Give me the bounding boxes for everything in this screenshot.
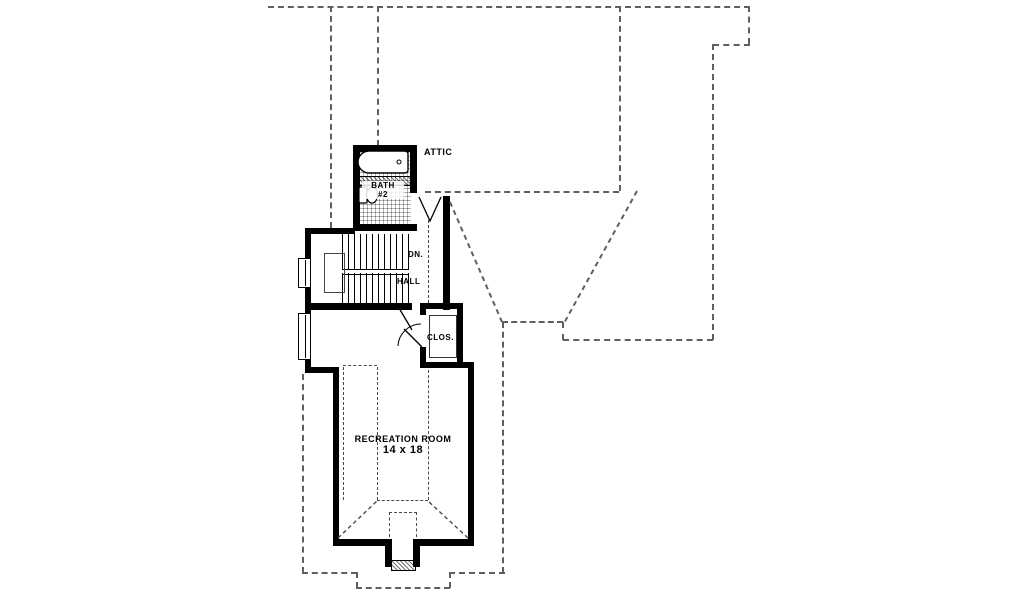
roof-outline-left-lower	[302, 374, 304, 573]
roof-outline-bottom-2	[356, 587, 450, 589]
roof-outline-attic-floor	[425, 191, 619, 193]
recreation-room-dimensions: 14 x 18	[333, 444, 473, 457]
roof-outline-rec-right	[502, 322, 504, 573]
bath-wall-right	[410, 145, 417, 193]
roof-outline-left-upper	[330, 6, 332, 228]
bath-wall-left	[353, 145, 360, 231]
closet-door-arc	[398, 324, 421, 346]
recreation-room-name: RECREATION ROOM	[333, 434, 473, 444]
plan-linework	[0, 0, 1024, 594]
dormer-ceiling-right	[416, 512, 417, 537]
stair-wall-bottom	[305, 303, 412, 310]
bath-label-name: BATH	[362, 181, 404, 190]
roof-outline-bottom-step-left	[356, 572, 358, 588]
rec-ceiling-diagonal-left	[338, 501, 377, 538]
closet-wall-bottom	[420, 362, 463, 368]
roof-outline-right	[712, 44, 714, 340]
roof-outline-wing-bottom	[563, 339, 713, 341]
hall-door-leaf	[399, 308, 412, 330]
ceiling-line-rec-top	[343, 365, 377, 366]
dormer-ceiling-left	[389, 512, 390, 537]
bath-wall-bottom	[353, 224, 417, 231]
bath-label-number: #2	[362, 190, 404, 199]
roof-valley-flat	[502, 321, 563, 323]
ceiling-line-hall	[428, 215, 429, 308]
closet-wall-right	[457, 303, 463, 368]
closet-door-leaf	[404, 329, 422, 347]
roof-outline-step	[713, 44, 750, 46]
attic-door-leaves	[419, 197, 441, 221]
closet-label: CLOS.	[427, 333, 454, 342]
roof-outline-bottom-3	[449, 572, 505, 574]
roof-outline-wing-left	[562, 322, 564, 340]
rec-ceiling-diagonal-right	[428, 501, 468, 538]
attic-label: ATTIC	[424, 147, 452, 157]
hall-label: HALL	[397, 277, 420, 286]
dormer-ceiling-top	[389, 512, 417, 513]
recreation-room-label: RECREATION ROOM 14 x 18	[333, 434, 473, 457]
ceiling-line-rec-flat	[377, 500, 428, 501]
hall-wall-right	[443, 196, 450, 310]
stair-treads-upper	[342, 234, 409, 270]
dormer-window	[391, 560, 416, 571]
closet-wall-left-upper	[420, 303, 426, 315]
rec-wall-bottom-right	[413, 539, 474, 546]
roof-outline-bottom-step-right	[449, 572, 451, 588]
roof-outline-top	[268, 6, 750, 8]
stair-landing-outline	[324, 253, 345, 293]
bath-label: BATH #2	[362, 181, 404, 199]
roof-valley-right-diagonal	[563, 191, 637, 325]
window-left-upper	[298, 258, 311, 288]
window-left-lower	[298, 313, 311, 360]
second-floor-plan: ATTIC BATH #2 DN. HALL CLOS. RECREATION …	[0, 0, 1024, 594]
roof-outline-right-upper	[748, 6, 750, 44]
rec-wall-bottom-left	[333, 539, 392, 546]
roof-outline-mid-right	[619, 6, 621, 191]
roof-outline-bottom-1	[302, 572, 357, 574]
stairs-down-label: DN.	[408, 250, 423, 259]
bath-wall-top	[353, 145, 417, 152]
roof-outline-bath-left	[377, 6, 379, 146]
